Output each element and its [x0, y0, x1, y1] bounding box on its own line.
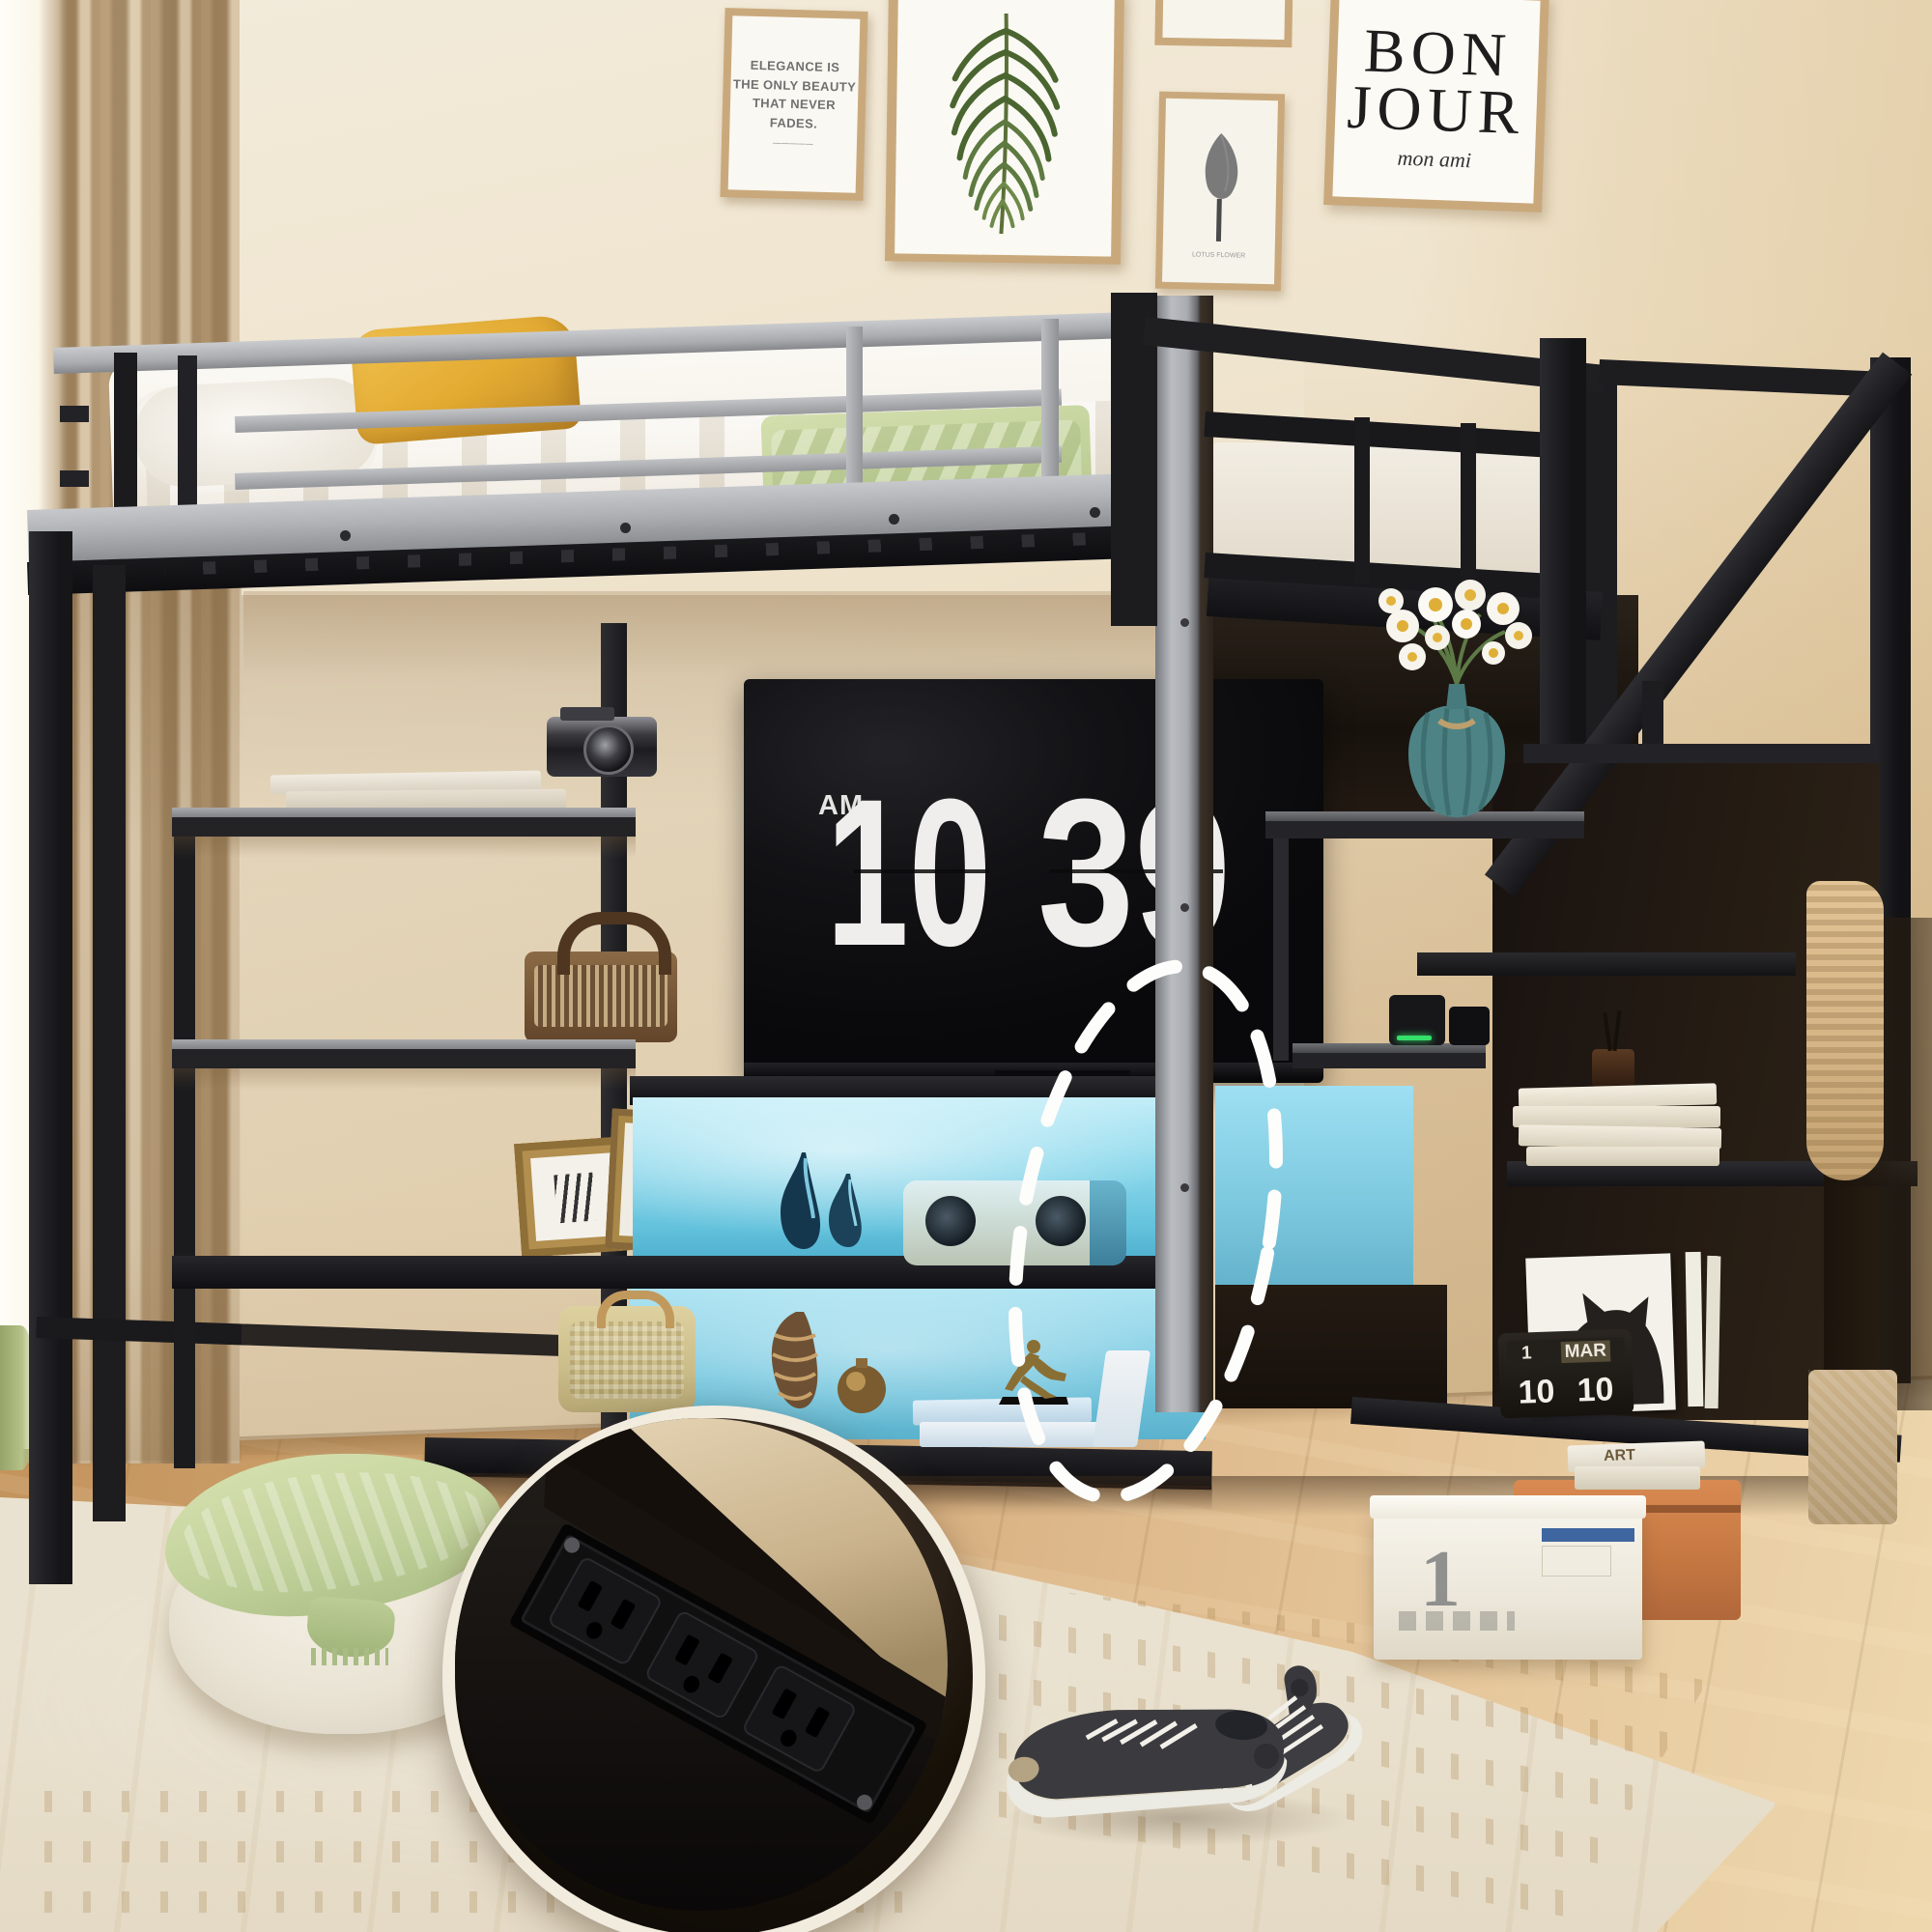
svg-text:LOTUS FLOWER: LOTUS FLOWER — [1192, 251, 1245, 259]
